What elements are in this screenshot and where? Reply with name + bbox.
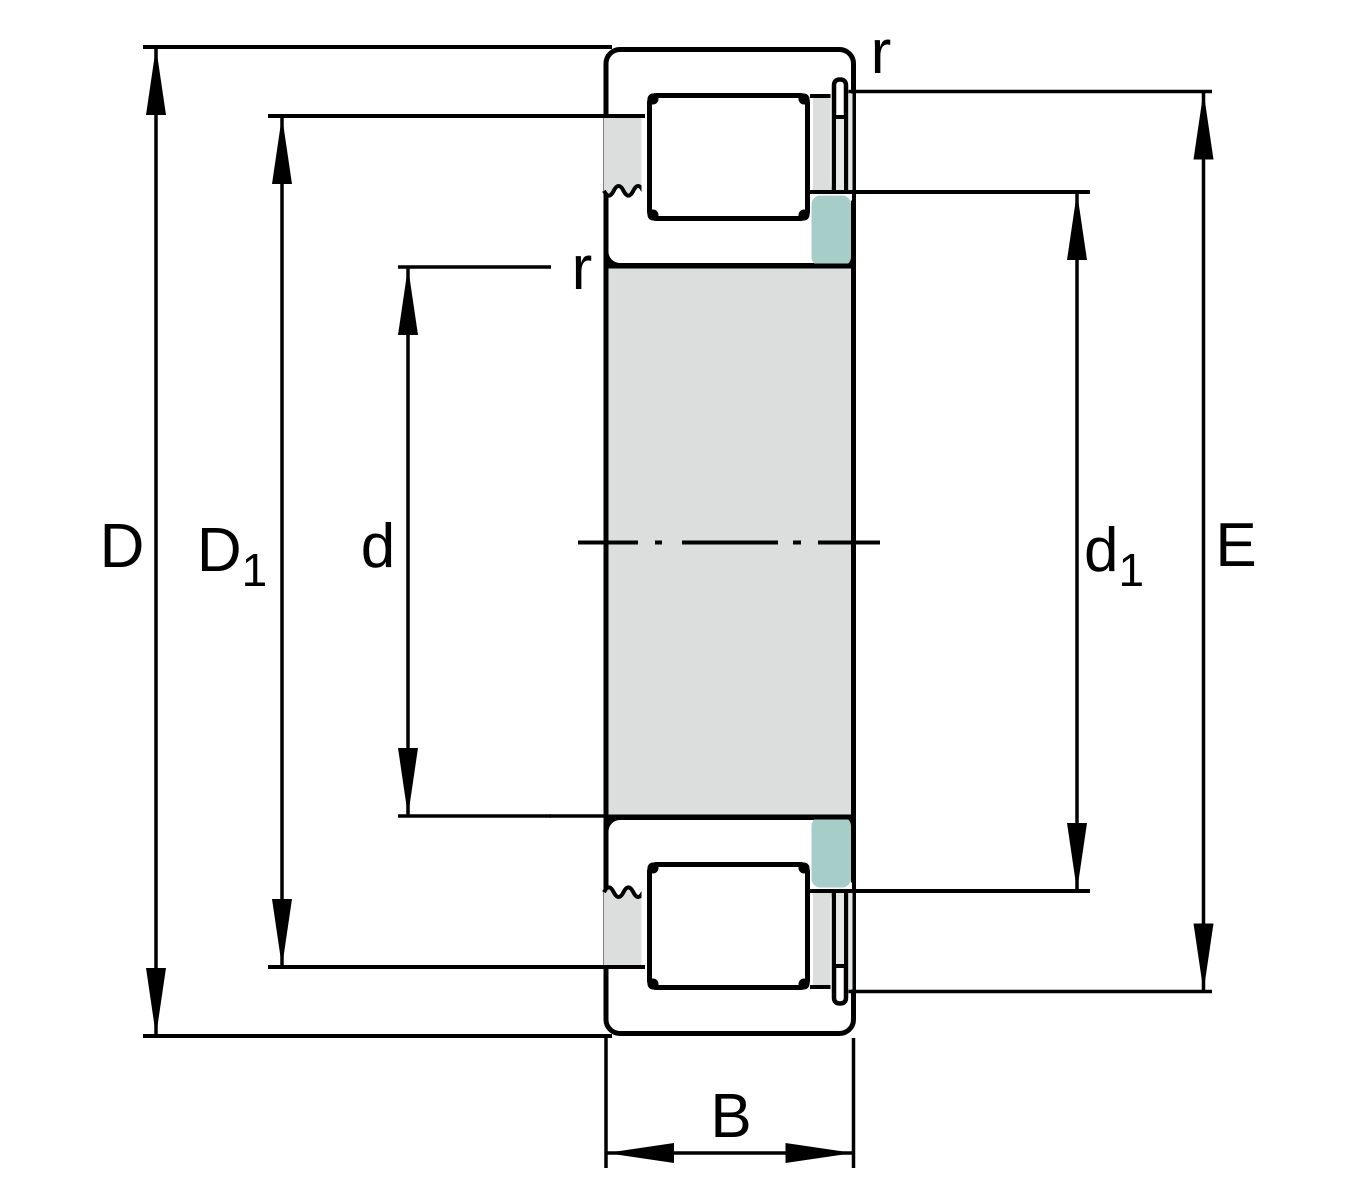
label-E: E	[1215, 515, 1256, 577]
ring-flange	[812, 196, 852, 267]
label-d: d	[361, 516, 395, 578]
label-B: B	[710, 1086, 751, 1148]
bearing-diagram-canvas	[0, 0, 1350, 1200]
dimension-D	[146, 47, 166, 1036]
label-d1: d1	[1084, 520, 1144, 582]
label-r-outer: r	[871, 22, 892, 84]
label-D1: D1	[197, 520, 267, 582]
bearing-section-bottom	[143, 816, 1212, 1036]
bearing-section-top	[143, 47, 1212, 267]
dimension-d	[398, 267, 418, 816]
label-D: D	[100, 516, 145, 578]
dimension-D1	[272, 116, 292, 967]
label-r-inner: r	[572, 238, 593, 300]
dimension-E	[1194, 92, 1214, 992]
bearing-cross-section-diagram: D D1 d d1 E B r r	[0, 0, 1350, 1200]
